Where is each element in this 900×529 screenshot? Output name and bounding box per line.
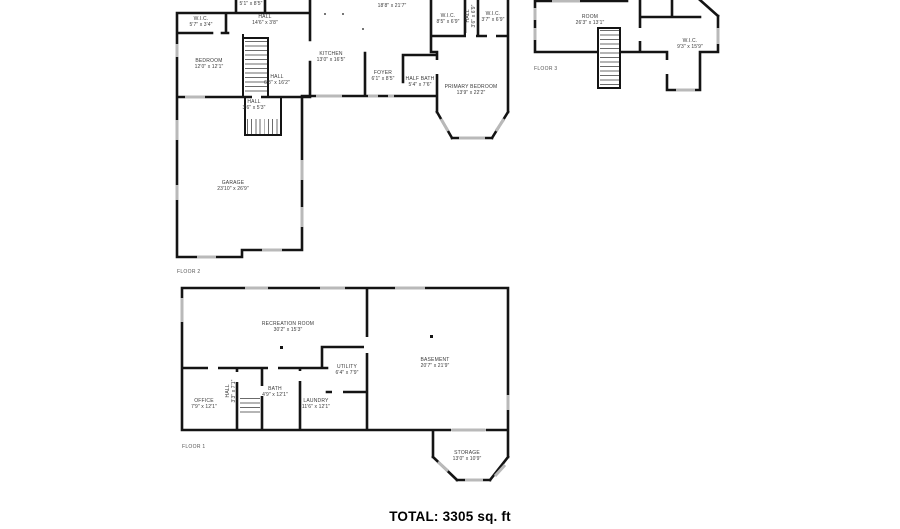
room-dims: 13'9" x 22'2" [445,90,498,96]
room-dims: 5'1" x 8'5" [240,1,263,7]
room-label-hall-small: HALL 3'6" x 5'3" [243,99,266,112]
floor2-walls [177,0,508,257]
room-dims: 6'1" x 8'5" [372,76,395,82]
room-label-living-partial: 18'8" x 21'7" [378,3,407,9]
room-dims: 5'7" x 3'4" [190,22,213,28]
room-label-hall-closet: HALL 3'6" x 6'9" [465,5,478,28]
floor-label-3: FLOOR 3 [534,66,558,72]
stairs-floor2-lower [247,119,280,134]
room-dims: 4'9" x 12'1" [262,392,288,398]
floor-label-2: FLOOR 2 [177,269,201,275]
floor-label-1: FLOOR 1 [182,444,206,450]
room-label-wic-right: W.I.C. 3'7" x 6'9" [482,11,505,24]
stairs-floor2-upper [245,41,267,95]
room-dims: 3'6" x 5'3" [243,105,266,111]
room-dims: 13'0" x 16'5" [317,57,346,63]
stairs-floor1 [240,398,260,414]
room-dims: 6'4" x 7'9" [336,370,359,376]
room-label-wic-top-left: W.I.C. 5'7" x 3'4" [190,16,213,29]
room-dims: 5'4" x 7'6" [406,82,435,88]
room-dims: 3'6" x 6'9" [471,5,477,28]
room-label-garage: GARAGE 23'10" x 26'9" [217,180,249,193]
room-label-storage: STORAGE 13'0" x 10'9" [453,450,482,463]
room-label-kitchen: KITCHEN 13'0" x 16'5" [317,51,346,64]
room-dims: 18'8" x 21'7" [378,3,407,9]
room-dims: 6'8" x 16'2" [264,80,290,86]
room-dims: 9'3" x 15'9" [677,44,703,50]
room-dims: 13'0" x 10'9" [453,456,482,462]
floorplan-walls-svg [0,0,900,529]
room-dims: 12'0" x 12'1" [195,64,224,70]
room-label-hall-mid: HALL 6'8" x 16'2" [264,74,290,87]
room-dims: 30'2" x 15'3" [262,327,314,333]
room-label-bath: BATH 4'9" x 12'1" [262,386,288,399]
room-dims: 26'3" x 13'1" [576,20,605,26]
room-dims: 23'10" x 26'9" [217,186,249,192]
room-label-basement: BASEMENT 20'7" x 21'9" [420,357,449,370]
total-area-text: TOTAL: 3305 sq. ft [0,509,900,524]
room-label-hall-floor1: HALL 3'3" x 7'1" [225,380,238,403]
room-label-laundry: LAUNDRY 11'6" x 12'1" [302,398,330,411]
room-label-bedroom: BEDROOM 12'0" x 12'1" [195,58,224,71]
ceiling-dot-marks [324,13,364,30]
room-label-half-bath: HALF BATH 5'4" x 7'6" [406,76,435,89]
room-dims: 8'5" x 6'9" [437,19,460,25]
room-label-utility: UTILITY 6'4" x 7'9" [336,364,359,377]
room-dims: 20'7" x 21'9" [420,363,449,369]
room-label-hall-top: HALL 14'6" x 3'8" [252,14,278,27]
room-label-foyer: FOYER 6'1" x 8'5" [372,70,395,83]
floorplan-image: W.I.C. 5'7" x 3'4" HALL 14'6" x 3'8" 5'1… [0,0,900,529]
room-label-upper-partial: 5'1" x 8'5" [240,1,263,7]
stairs-floor3 [600,30,619,86]
room-label-room: ROOM 26'3" x 13'1" [576,14,605,27]
room-dims: 11'6" x 12'1" [302,404,330,410]
room-dims: 3'7" x 6'9" [482,17,505,23]
room-dims: 14'6" x 3'8" [252,20,278,26]
room-label-primary-bedroom: PRIMARY BEDROOM 13'9" x 22'2" [445,84,498,97]
room-label-recreation-room: RECREATION ROOM 30'2" x 15'3" [262,321,314,334]
room-label-wic-left: W.I.C. 8'5" x 6'9" [437,13,460,26]
room-label-wic-floor3: W.I.C. 9'3" x 15'9" [677,38,703,51]
room-dims: 7'9" x 12'1" [191,404,217,410]
room-dims: 3'3" x 7'1" [231,380,237,403]
room-label-office: OFFICE 7'9" x 12'1" [191,398,217,411]
